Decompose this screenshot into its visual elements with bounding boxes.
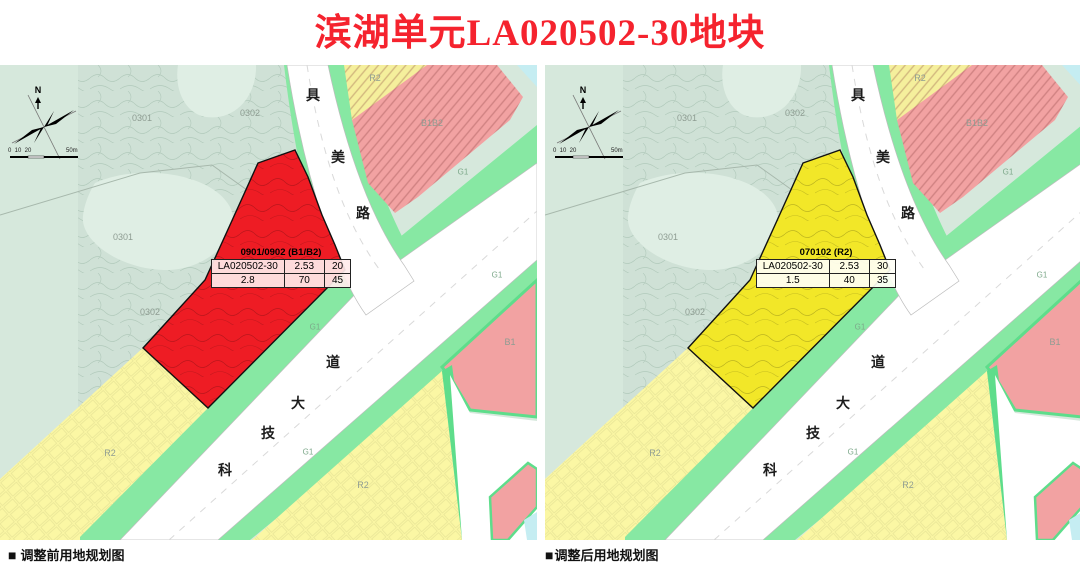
plot-code-header: 0901/0902 (B1/B2) (211, 247, 351, 258)
table-cell: LA020502-30 (212, 260, 285, 274)
compass-north-label: N (580, 85, 587, 95)
table-cell: 30 (870, 260, 896, 274)
plot-indicator-table: LA020502-302.53301.54035 (756, 259, 896, 288)
scale-end-label: 50m (611, 148, 623, 154)
road-name-char: 大 (291, 393, 305, 413)
legend-square-icon: ■ (545, 548, 553, 562)
caption-after: ■ 调整后用地规划图 (545, 545, 658, 564)
road-name-char: 科 (218, 460, 232, 480)
road-name-char: 具 (851, 85, 865, 105)
compass-north-label: N (35, 85, 42, 95)
scale-bar (555, 156, 623, 158)
map-before: 0301030103020302R2B1B2G1G1G1G1B1R2R2具美路科… (0, 65, 537, 540)
road-name-char: 大 (836, 393, 850, 413)
road-name-char: 美 (876, 147, 890, 167)
table-row: 1.54035 (757, 274, 896, 288)
page-title: 滨湖单元LA020502-30地块 (0, 2, 1080, 56)
table-row: 2.87045 (212, 274, 351, 288)
table-row: LA020502-302.5330 (757, 260, 896, 274)
road-name-char: 技 (261, 423, 275, 443)
planning-comparison-page: { "title": "滨湖单元LA020502-30地块", "title_c… (0, 0, 1080, 571)
road-name-char: 技 (806, 423, 820, 443)
table-row: LA020502-302.5320 (212, 260, 351, 274)
planning-map-canvas (545, 65, 1080, 540)
scale-end-label: 50m (66, 148, 78, 154)
table-cell: 2.53 (829, 260, 869, 274)
table-cell: 35 (870, 274, 896, 288)
caption-after-text: 调整后用地规划图 (554, 545, 658, 564)
scale-ticks-label: 0 10 20 (8, 148, 31, 154)
map-after: 0301030103020302R2B1B2G1G1G1G1B1R2R2具美路科… (545, 65, 1080, 540)
road-name-char: 路 (901, 203, 915, 223)
table-cell: 1.5 (757, 274, 830, 288)
caption-before: ■ 调整前用地规划图 (8, 545, 124, 564)
plot-indicator-table: LA020502-302.53202.87045 (211, 259, 351, 288)
road-name-char: 道 (326, 352, 340, 372)
table-cell: LA020502-30 (757, 260, 830, 274)
table-cell: 2.53 (284, 260, 324, 274)
table-cell: 20 (325, 260, 351, 274)
scale-bar (10, 156, 78, 158)
table-cell: 45 (325, 274, 351, 288)
plot-info-box: 070102 (R2)LA020502-302.53301.54035 (756, 247, 896, 288)
table-cell: 2.8 (212, 274, 285, 288)
road-name-char: 具 (306, 85, 320, 105)
road-name-char: 道 (871, 352, 885, 372)
road-name-char: 科 (763, 460, 777, 480)
plot-info-box: 0901/0902 (B1/B2)LA020502-302.53202.8704… (211, 247, 351, 288)
table-cell: 40 (829, 274, 869, 288)
road-name-char: 路 (356, 203, 370, 223)
legend-square-icon: ■ (8, 548, 16, 562)
planning-map-canvas (0, 65, 537, 540)
table-cell: 70 (284, 274, 324, 288)
caption-before-text: 调整前用地规划图 (20, 545, 124, 564)
scale-ticks-label: 0 10 20 (553, 148, 576, 154)
road-name-char: 美 (331, 147, 345, 167)
plot-code-header: 070102 (R2) (756, 247, 896, 258)
